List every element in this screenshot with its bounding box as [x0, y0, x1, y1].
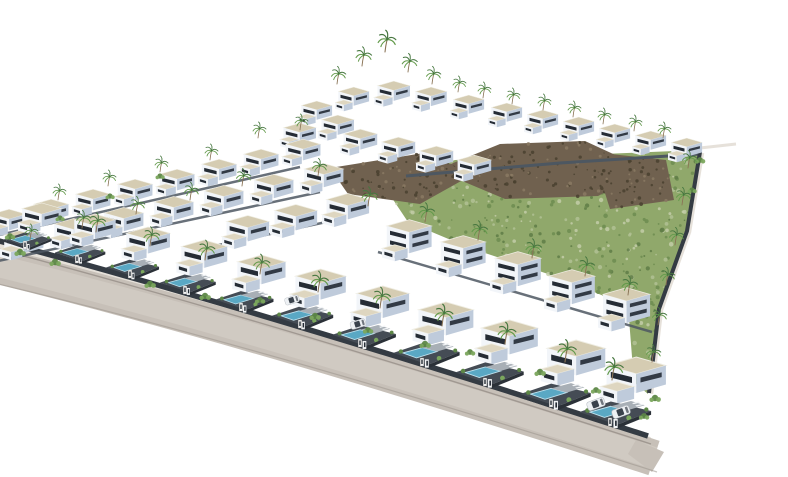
- render-canvas: [0, 0, 788, 477]
- scene-svg: [0, 0, 788, 477]
